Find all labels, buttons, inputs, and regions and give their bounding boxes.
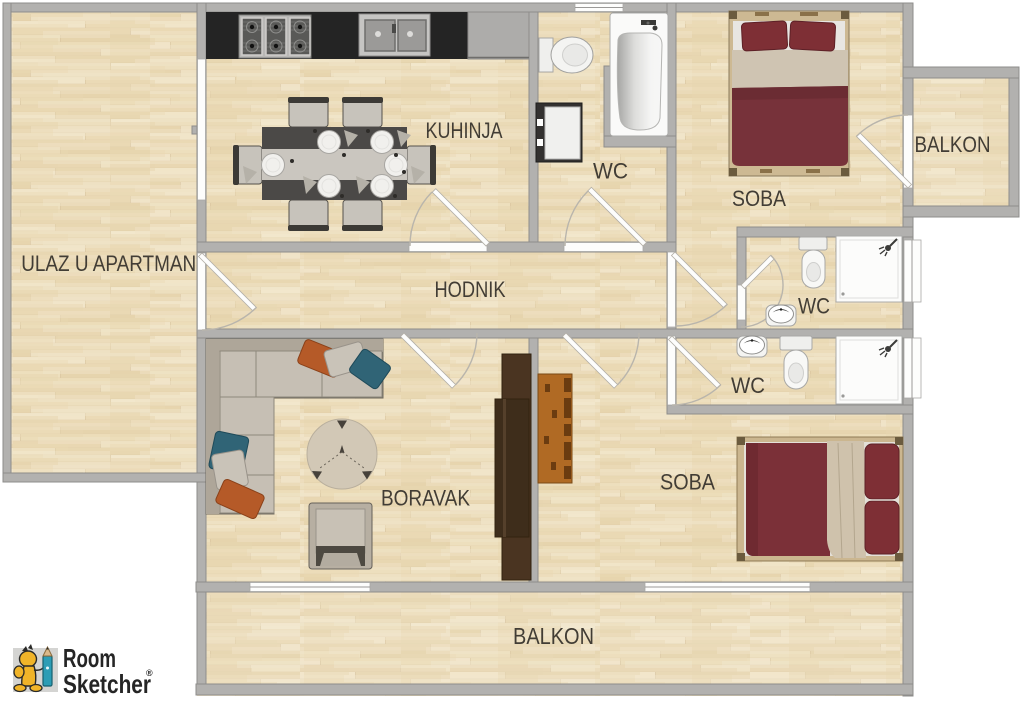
svg-text:SOBA: SOBA	[660, 470, 715, 495]
svg-text:WC: WC	[593, 159, 628, 184]
svg-text:BALKON: BALKON	[513, 623, 594, 649]
svg-text:BALKON: BALKON	[915, 132, 991, 157]
svg-text:BORAVAK: BORAVAK	[381, 486, 470, 511]
svg-text:HODNIK: HODNIK	[435, 277, 506, 302]
svg-text:®: ®	[146, 668, 153, 678]
svg-text:ULAZ U APARTMAN: ULAZ U APARTMAN	[21, 251, 196, 276]
svg-text:Sketcher: Sketcher	[63, 669, 151, 699]
svg-text:WC: WC	[731, 373, 765, 398]
svg-text:SOBA: SOBA	[732, 186, 786, 211]
svg-text:WC: WC	[798, 294, 830, 319]
svg-text:KUHINJA: KUHINJA	[426, 118, 503, 143]
